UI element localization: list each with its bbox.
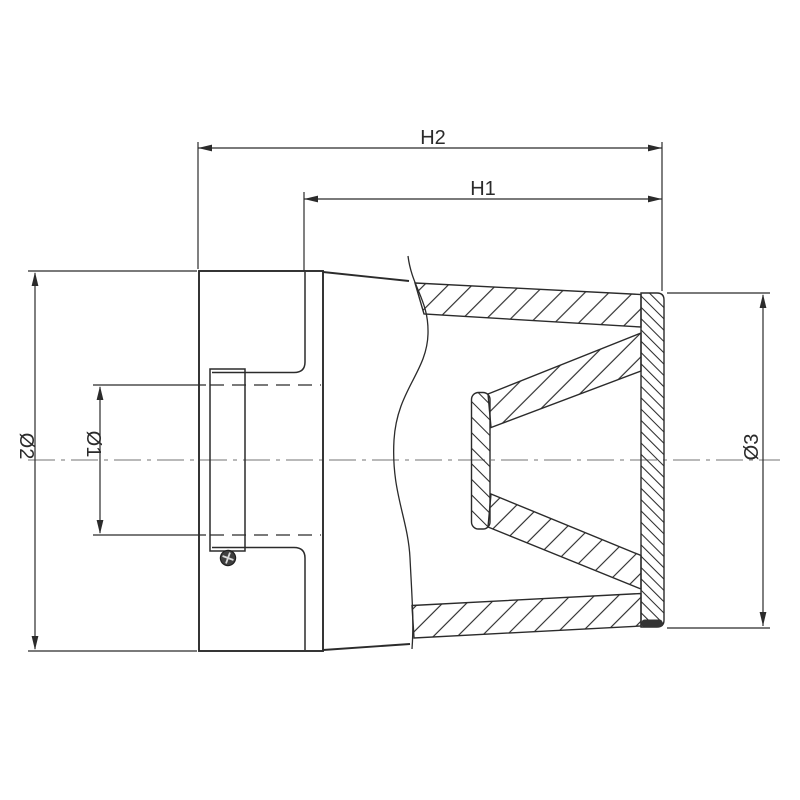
- inner-cone-lower-wall: [488, 494, 641, 589]
- drawing-canvas: H2 H1 Ø2 Ø1 Ø3: [0, 0, 800, 800]
- dim-d2-label: Ø2: [15, 433, 37, 460]
- technical-drawing: H2 H1 Ø2 Ø1 Ø3: [0, 0, 800, 800]
- end-cap: [641, 293, 664, 627]
- filter-media-bottom-band: [412, 594, 641, 639]
- inner-cone-tip: [472, 393, 491, 530]
- dim-d1-label: Ø1: [82, 431, 104, 458]
- dim-d2-arrow-top: [32, 272, 39, 286]
- dim-d2: Ø2: [15, 271, 197, 651]
- filter-media-top-band: [415, 283, 641, 327]
- dim-h1-arrow-left: [304, 196, 318, 203]
- dim-h2: H2: [198, 127, 662, 291]
- dim-h1-label: H1: [470, 178, 496, 200]
- dim-h1: H1: [304, 178, 662, 271]
- dim-d1-arrow-bottom: [97, 520, 104, 534]
- dim-h2-arrow-left: [198, 145, 212, 152]
- flange-inner-contour-top: [212, 272, 305, 373]
- dim-d1: Ø1: [82, 385, 206, 535]
- filter-cone: [323, 256, 664, 650]
- dim-h2-arrow-right: [648, 145, 662, 152]
- dim-d1-arrow-top: [97, 386, 104, 400]
- dim-d3-label: Ø3: [741, 434, 763, 461]
- break-line: [394, 256, 428, 649]
- dim-d3-arrow-bottom: [760, 612, 767, 626]
- end-cap-base: [642, 620, 663, 628]
- flange-body: [199, 271, 323, 651]
- cone-outline-bottom: [323, 644, 410, 650]
- dim-d3-arrow-top: [760, 294, 767, 308]
- dim-h1-arrow-right: [648, 196, 662, 203]
- dim-h2-label: H2: [420, 127, 446, 149]
- cone-outline-top: [323, 272, 409, 281]
- inner-cone-upper-wall: [488, 333, 641, 428]
- dim-d2-arrow-bottom: [32, 636, 39, 650]
